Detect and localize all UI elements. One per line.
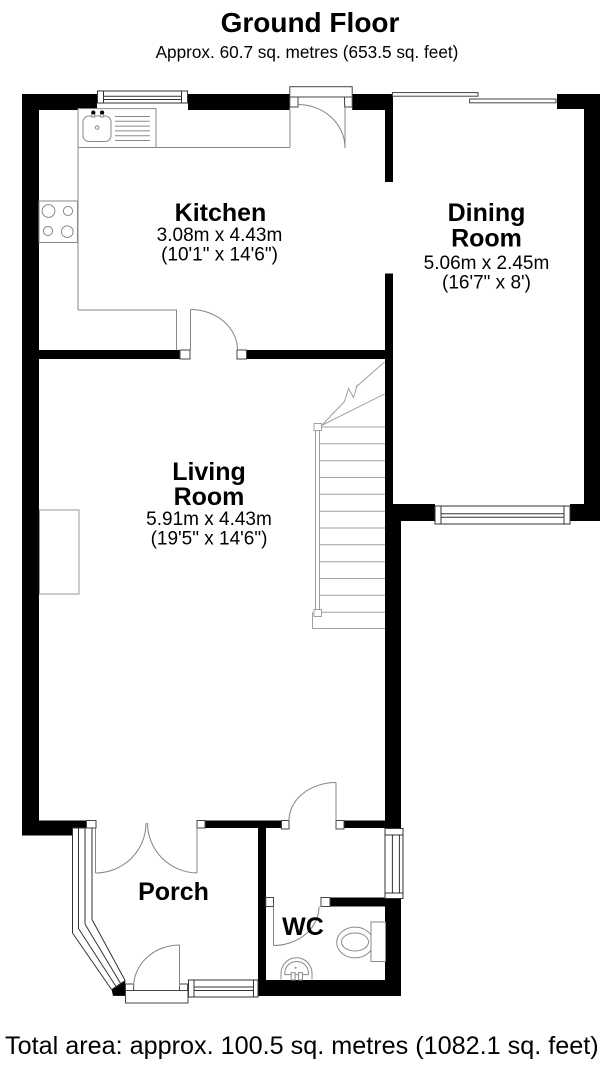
svg-text:(10'1" x 14'6"): (10'1" x 14'6")	[161, 245, 278, 266]
svg-text:Porch: Porch	[138, 878, 209, 906]
svg-text:Total area: approx. 100.5 sq.: Total area: approx. 100.5 sq. metres (10…	[5, 1032, 599, 1060]
svg-text:(19'5" x 14'6"): (19'5" x 14'6")	[151, 529, 268, 550]
svg-text:5.06m x 2.45m: 5.06m x 2.45m	[424, 253, 550, 274]
svg-text:Room: Room	[174, 483, 245, 511]
svg-text:5.91m x 4.43m: 5.91m x 4.43m	[146, 509, 272, 530]
svg-text:Dining: Dining	[448, 199, 526, 227]
svg-text:(16'7" x 8'): (16'7" x 8')	[442, 273, 531, 294]
svg-text:WC: WC	[282, 913, 324, 941]
svg-text:Kitchen: Kitchen	[175, 199, 267, 227]
svg-text:Approx. 60.7 sq. metres (653.5: Approx. 60.7 sq. metres (653.5 sq. feet)	[156, 42, 459, 62]
svg-text:Room: Room	[451, 225, 522, 253]
svg-text:3.08m x 4.43m: 3.08m x 4.43m	[157, 225, 283, 246]
svg-text:Living: Living	[172, 458, 246, 486]
svg-text:Ground Floor: Ground Floor	[221, 7, 400, 38]
